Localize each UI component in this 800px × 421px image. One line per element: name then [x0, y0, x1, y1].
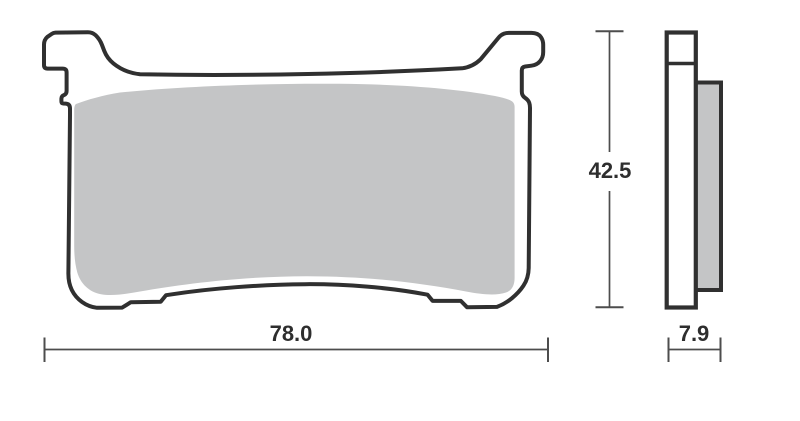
brake-pad-diagram	[0, 0, 800, 421]
height-dimension-label: 42.5	[589, 160, 632, 182]
friction-material-front	[74, 84, 514, 295]
front-view	[44, 32, 543, 308]
thickness-dimension-label: 7.9	[679, 323, 710, 345]
technical-drawing: 78.0 42.5 7.9	[0, 0, 800, 421]
side-view	[667, 33, 721, 308]
backplate-side	[667, 33, 696, 308]
width-dimension-label: 78.0	[270, 323, 313, 345]
